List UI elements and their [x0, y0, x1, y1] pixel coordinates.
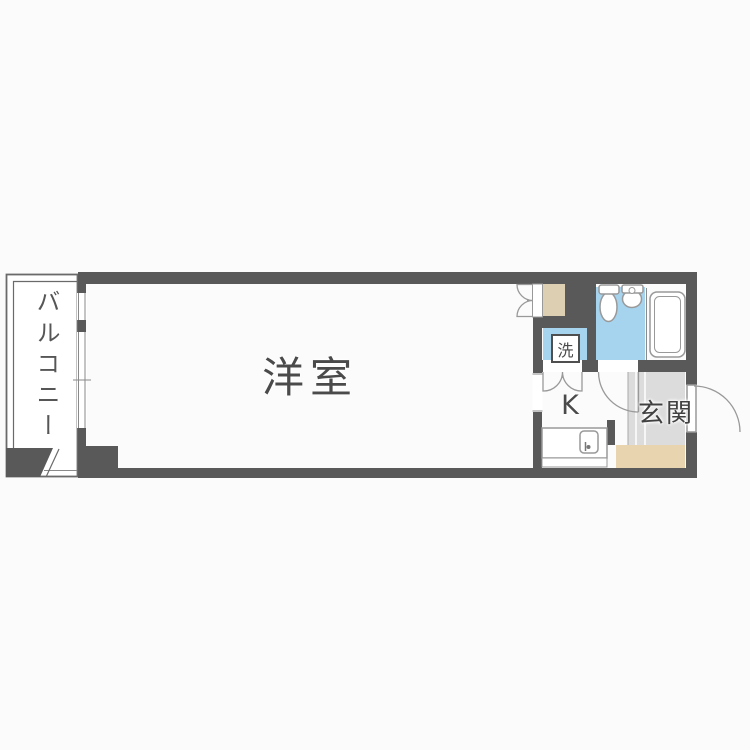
balcony-label: バルコニー — [29, 289, 64, 464]
washbasin-tap — [629, 288, 635, 294]
entrance-label: 玄関 — [635, 393, 697, 430]
toilet-bowl — [600, 293, 617, 322]
opening-closet — [533, 284, 543, 317]
bathtub-inner — [655, 297, 681, 353]
kitchen-counter-front — [542, 458, 607, 467]
closet-double-door — [517, 285, 533, 317]
corridor-floor — [616, 445, 685, 468]
laundry-symbol: 洗 — [551, 334, 580, 363]
kitchen-faucet-knob — [587, 445, 591, 449]
kitchen-sink — [580, 431, 598, 453]
kitchen-label: K — [550, 390, 590, 421]
toilet-tank — [599, 285, 619, 294]
wall-entrance-stub — [607, 420, 615, 445]
wall-bottom — [86, 468, 697, 478]
living-room-label: 洋室 — [250, 344, 370, 405]
laundry-double-door — [543, 372, 582, 391]
floorplan-drawing — [0, 0, 750, 750]
opening-bathroom — [598, 360, 638, 372]
wall-top — [78, 272, 697, 284]
closet-floor — [543, 284, 565, 316]
wall-laundry-toilet — [587, 284, 596, 372]
laundry-label: 洗 — [557, 337, 573, 361]
doorway-living-kitchen — [533, 373, 543, 412]
floorplan: 洋室 バルコニー K 玄関 洗 — [0, 0, 750, 750]
entrance-door-swing — [694, 386, 740, 432]
wall-right — [686, 284, 697, 478]
